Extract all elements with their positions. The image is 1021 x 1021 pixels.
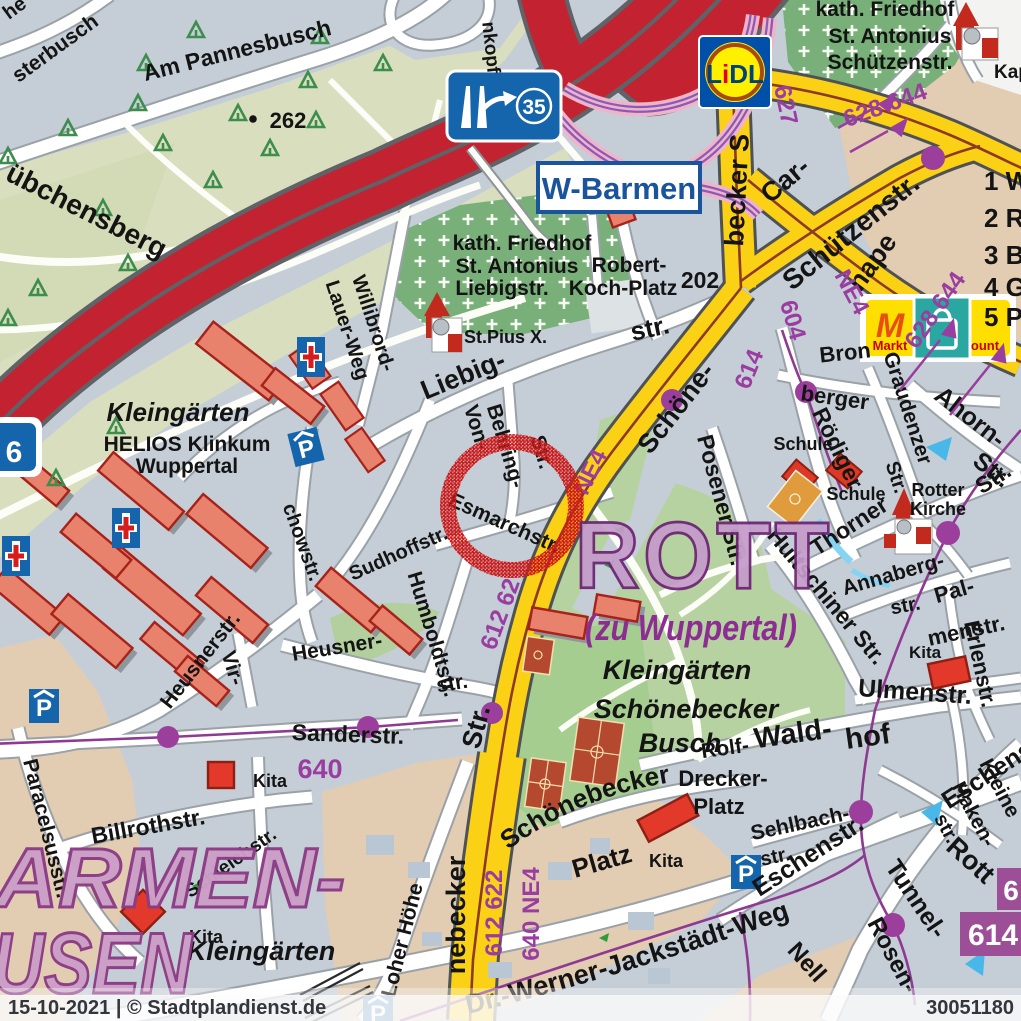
svg-text:kath. Friedhof: kath. Friedhof (816, 0, 956, 21)
svg-text:15-10-2021 | © Stadtplandienst: 15-10-2021 | © Stadtplandienst.de (8, 997, 326, 1019)
svg-text:HELIOS Klinkum: HELIOS Klinkum (104, 433, 271, 456)
svg-text:Drecker-: Drecker- (678, 766, 767, 791)
svg-text:Wuppertal: Wuppertal (136, 455, 238, 478)
svg-text:640 NE4: 640 NE4 (518, 867, 545, 961)
svg-text:ARMEN-: ARMEN- (0, 831, 345, 925)
svg-text:Kirche: Kirche (910, 499, 966, 519)
svg-text:1 Wu: 1 Wu (984, 166, 1021, 196)
svg-text:Rotter: Rotter (912, 480, 965, 500)
svg-text:Schützenstr.: Schützenstr. (828, 51, 953, 74)
svg-text:(zu Wuppertal): (zu Wuppertal) (585, 607, 797, 648)
svg-text:becker S: becker S (719, 133, 755, 247)
svg-text:Robert-: Robert- (592, 254, 667, 277)
svg-text:Kapelle: Kapelle (994, 62, 1021, 83)
svg-text:LiDL: LiDL (706, 59, 764, 89)
svg-text:Kleingärten: Kleingärten (106, 397, 249, 427)
svg-text:4 Gr: 4 Gr (984, 272, 1021, 302)
svg-text:Schönebecker: Schönebecker (594, 694, 780, 724)
svg-text:Kleingärten: Kleingärten (187, 936, 336, 966)
svg-text:Busch: Busch (639, 728, 722, 758)
svg-text:W-Barmen: W-Barmen (542, 171, 696, 206)
svg-text:Kita: Kita (649, 851, 684, 871)
svg-text:262: 262 (270, 108, 307, 133)
svg-text:ROTT: ROTT (575, 503, 833, 609)
svg-text:Kleingärten: Kleingärten (603, 655, 752, 685)
svg-text:St.Pius X.: St.Pius X. (464, 327, 547, 347)
svg-text:Kita: Kita (253, 771, 288, 791)
svg-text:Kita: Kita (909, 643, 942, 662)
svg-text:6: 6 (1003, 875, 1019, 906)
svg-text:nebecker: nebecker (441, 855, 471, 974)
svg-text:6: 6 (6, 436, 23, 469)
svg-text:St. Antonius: St. Antonius (456, 255, 579, 278)
svg-text:35: 35 (522, 96, 546, 119)
svg-text:2 Ro: 2 Ro (984, 203, 1021, 233)
svg-text:614: 614 (968, 919, 1018, 952)
svg-text:612 622: 612 622 (481, 870, 508, 957)
svg-text:640: 640 (297, 754, 342, 784)
svg-text:hof: hof (843, 718, 892, 756)
svg-text:Sanderstr.: Sanderstr. (291, 719, 404, 749)
svg-text:Liebigstr.: Liebigstr. (455, 277, 548, 300)
svg-text:Platz: Platz (693, 794, 744, 819)
svg-text:St. Antonius: St. Antonius (829, 25, 952, 48)
svg-text:30051180: 30051180 (926, 997, 1014, 1019)
svg-text:5 Po: 5 Po (984, 302, 1021, 332)
svg-text:3 Ba: 3 Ba (984, 240, 1021, 270)
svg-text:Bron: Bron (818, 337, 872, 367)
svg-text:ount: ount (971, 338, 1000, 353)
svg-text:Koch-Platz: Koch-Platz (569, 277, 678, 300)
svg-text:202: 202 (681, 267, 719, 293)
svg-text:kath. Friedhof: kath. Friedhof (453, 232, 593, 255)
